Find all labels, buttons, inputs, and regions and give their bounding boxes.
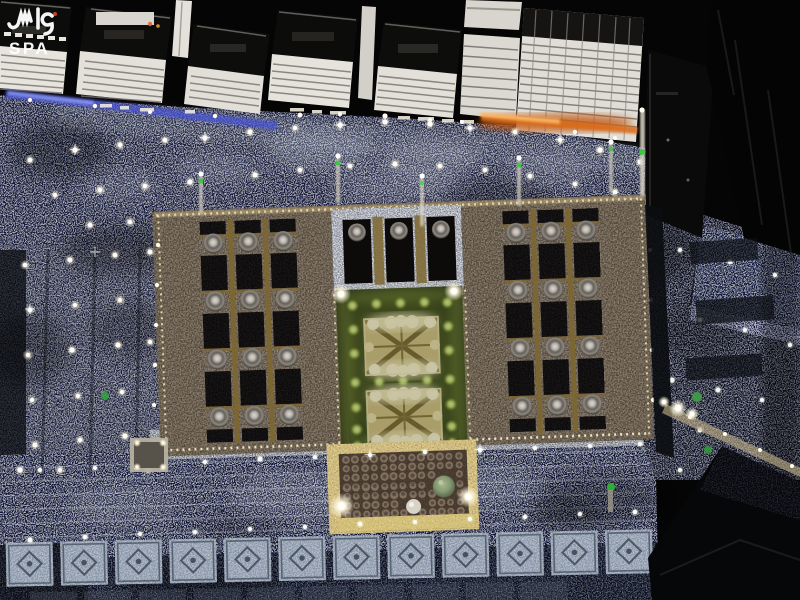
svg-text:SPA: SPA bbox=[9, 39, 50, 58]
